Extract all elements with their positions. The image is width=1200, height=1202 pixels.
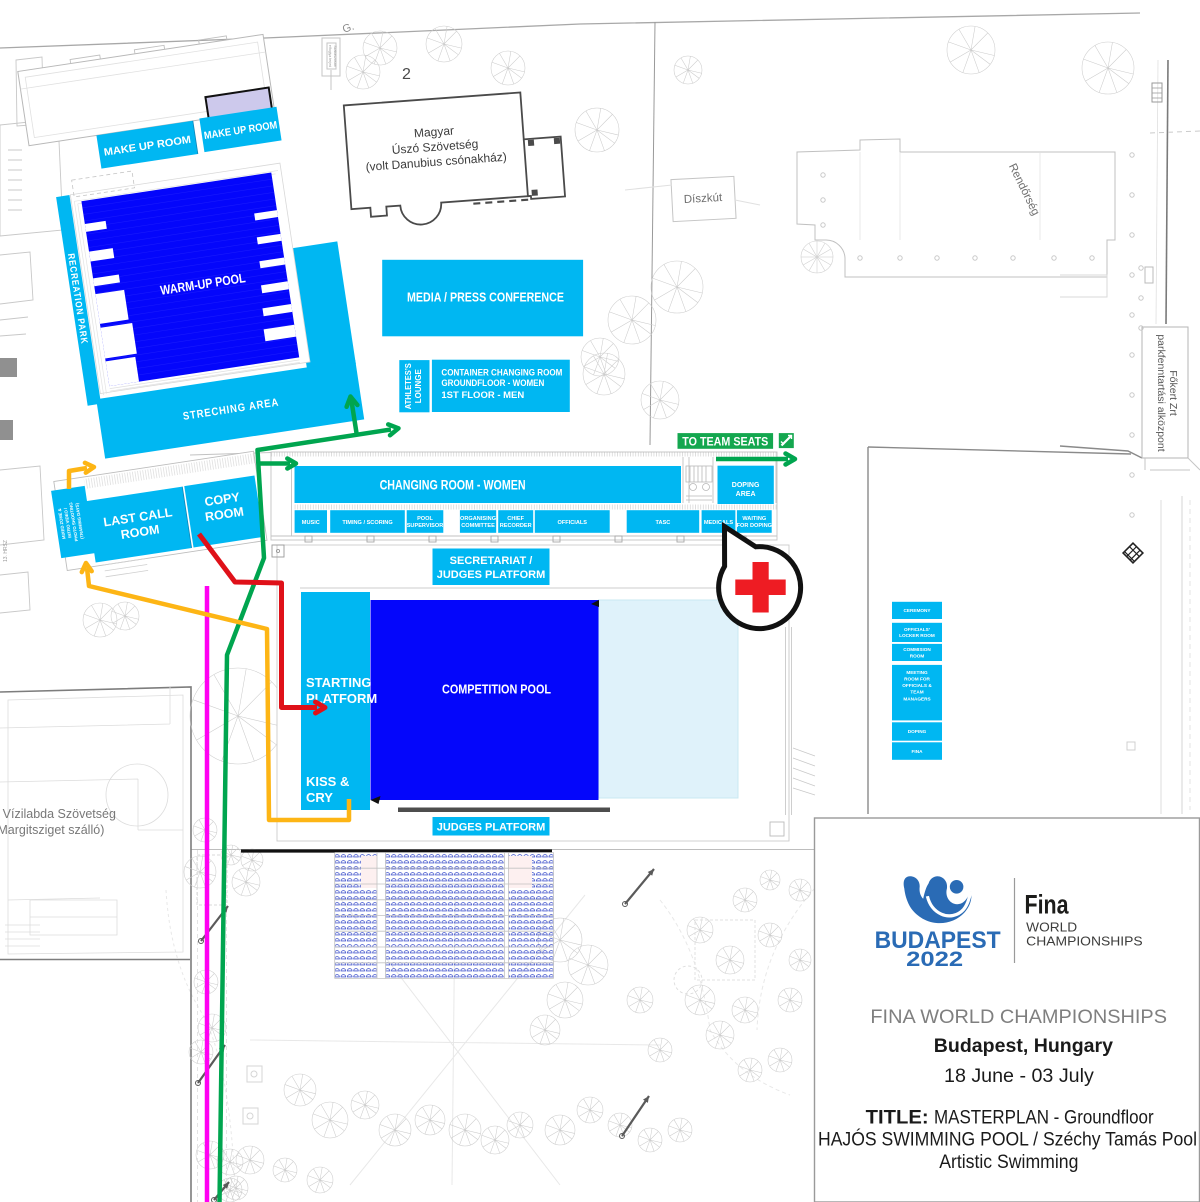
svg-text:FOR DOPING: FOR DOPING bbox=[737, 523, 772, 529]
svg-text:lt Margitsziget szálló): lt Margitsziget szálló) bbox=[0, 823, 104, 837]
svg-text:elfoglya terjed: elfoglya terjed bbox=[328, 45, 332, 67]
svg-text:STARTING: STARTING bbox=[306, 675, 371, 690]
svg-text:SECRETARIAT /: SECRETARIAT / bbox=[450, 555, 533, 567]
svg-text:AREA: AREA bbox=[736, 491, 756, 498]
svg-text:WAITING: WAITING bbox=[742, 516, 766, 522]
svg-text:CEREMONY: CEREMONY bbox=[903, 608, 931, 613]
svg-text:13. HRSZ: 13. HRSZ bbox=[3, 540, 9, 562]
svg-text:DOPING: DOPING bbox=[908, 729, 927, 734]
svg-text:Artistic Swimming: Artistic Swimming bbox=[939, 1152, 1078, 1173]
svg-text:JUDGES PLATFORM: JUDGES PLATFORM bbox=[437, 822, 546, 834]
svg-text:TITLE:: TITLE: bbox=[866, 1108, 929, 1129]
svg-text:18 June - 03 July: 18 June - 03 July bbox=[944, 1066, 1094, 1087]
svg-text:MEETING: MEETING bbox=[906, 670, 928, 675]
svg-text:2: 2 bbox=[402, 66, 411, 83]
svg-text:Főkert Zrt: Főkert Zrt bbox=[1167, 370, 1179, 416]
svg-text:CHANGING ROOM - WOMEN: CHANGING ROOM - WOMEN bbox=[380, 477, 526, 492]
svg-text:MUSIC: MUSIC bbox=[302, 520, 320, 526]
svg-text:KISS &: KISS & bbox=[306, 774, 349, 789]
svg-text:TO TEAM SEATS: TO TEAM SEATS bbox=[682, 434, 768, 448]
svg-text:MEDIA / PRESS CONFERENCE: MEDIA / PRESS CONFERENCE bbox=[407, 291, 564, 305]
svg-text:DOPING: DOPING bbox=[732, 482, 760, 489]
svg-text:Díszkút: Díszkút bbox=[684, 192, 724, 206]
svg-text:MEDICALS: MEDICALS bbox=[704, 520, 733, 526]
svg-text:ATHLETES’S: ATHLETES’S bbox=[403, 363, 413, 409]
svg-text:FINA WORLD CHAMPIONSHIPS: FINA WORLD CHAMPIONSHIPS bbox=[870, 1007, 1167, 1028]
svg-text:LOUNGE: LOUNGE bbox=[413, 369, 423, 403]
svg-text:MASTERPLAN - Groundfloor: MASTERPLAN - Groundfloor bbox=[934, 1108, 1154, 1129]
svg-text:Fina: Fina bbox=[1025, 890, 1070, 920]
svg-text:OFFICIALS &: OFFICIALS & bbox=[902, 683, 932, 688]
svg-text:COMPETITION POOL: COMPETITION POOL bbox=[442, 682, 551, 697]
svg-text:Magyar: Magyar bbox=[414, 123, 455, 140]
svg-text:CHIEF: CHIEF bbox=[507, 516, 524, 522]
svg-text:ROOM FOR: ROOM FOR bbox=[904, 677, 930, 682]
svg-text:Budapest, Hungary: Budapest, Hungary bbox=[934, 1036, 1114, 1057]
svg-text:WORLD: WORLD bbox=[1026, 920, 1077, 935]
svg-text:LOCKER ROOM: LOCKER ROOM bbox=[899, 633, 935, 638]
svg-text:TIMING / SCORING: TIMING / SCORING bbox=[342, 520, 392, 526]
svg-text:Szakaszosan: Szakaszosan bbox=[333, 45, 337, 66]
svg-text:RECORDER: RECORDER bbox=[500, 523, 532, 529]
svg-text:JUDGES PLATFORM: JUDGES PLATFORM bbox=[437, 569, 546, 581]
svg-text:SUPERVISOR: SUPERVISOR bbox=[407, 523, 444, 529]
svg-text:ROOM: ROOM bbox=[910, 653, 925, 658]
svg-text:ar Vízilabda Szövetség: ar Vízilabda Szövetség bbox=[0, 807, 116, 821]
svg-text:GROUNDFLOOR - WOMEN: GROUNDFLOOR - WOMEN bbox=[441, 378, 544, 389]
svg-text:MANAGERS: MANAGERS bbox=[903, 696, 930, 701]
svg-text:ORGANISING: ORGANISING bbox=[460, 516, 496, 522]
svg-text:CHAMPIONSHIPS: CHAMPIONSHIPS bbox=[1026, 934, 1143, 949]
svg-text:COMMISION: COMMISION bbox=[903, 647, 931, 652]
svg-text:CONTAINER CHANGING ROOM: CONTAINER CHANGING ROOM bbox=[441, 368, 562, 379]
svg-text:2022: 2022 bbox=[906, 948, 963, 971]
svg-text:FINA: FINA bbox=[912, 749, 924, 754]
svg-text:1ST FLOOR - MEN: 1ST FLOOR - MEN bbox=[441, 390, 524, 401]
svg-text:OFFICIALS: OFFICIALS bbox=[557, 520, 587, 526]
svg-text:POOL: POOL bbox=[417, 516, 433, 522]
svg-text:COMMITTEE: COMMITTEE bbox=[461, 523, 495, 529]
svg-text:CRY: CRY bbox=[306, 790, 333, 805]
svg-text:HAJÓS SWIMMING POOL / Széchy T: HAJÓS SWIMMING POOL / Széchy Tamás Pool bbox=[818, 1129, 1197, 1151]
svg-text:TEAM: TEAM bbox=[910, 690, 923, 695]
svg-text:OFFICIALS’: OFFICIALS’ bbox=[904, 627, 930, 632]
svg-text:TASC: TASC bbox=[656, 520, 671, 526]
svg-text:parkfenntartási alközpont: parkfenntartási alközpont bbox=[1155, 334, 1167, 451]
